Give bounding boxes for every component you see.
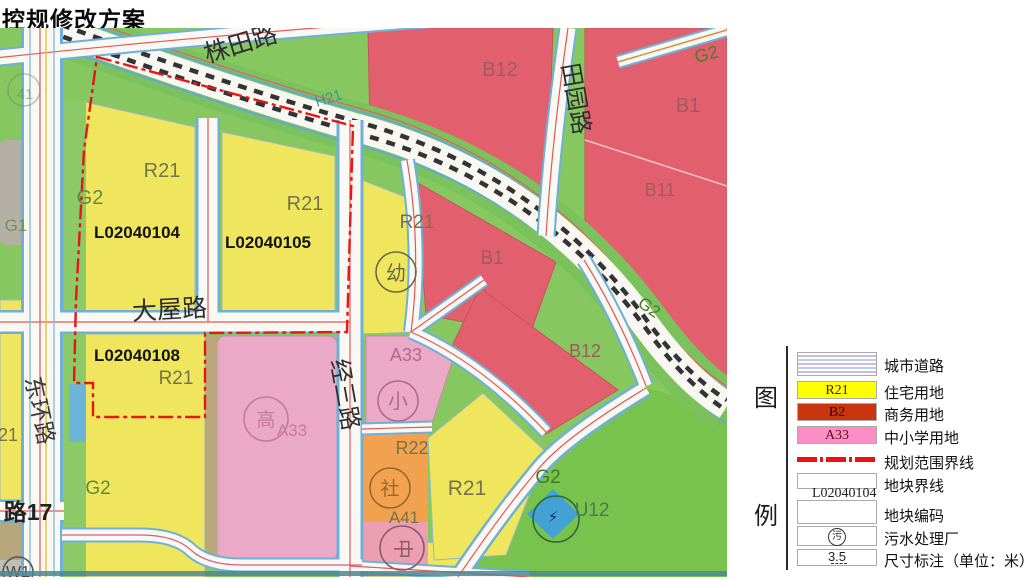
label-r21-104: R21 — [144, 160, 181, 182]
planning-map-page: 控规修改方案 — [0, 0, 1024, 580]
legend-label-business: 商务用地 — [884, 404, 944, 425]
legend-label-plot-line: 地块界线 — [884, 475, 944, 496]
zoning-map: 株田路 田园路 H21 B12 B1 B11 G2 G2 G1 41 R21 L… — [0, 0, 727, 580]
legend-divider — [786, 346, 788, 570]
label-code-104: L02040104 — [94, 223, 181, 242]
road-dawu: 大屋路 — [131, 294, 207, 326]
legend-swatch-dimension: 3.5 — [797, 549, 877, 566]
label-g2-strip: G2 — [85, 478, 110, 499]
glyph-primary: 小 — [388, 390, 408, 413]
legend-label-plot-code: 地块编码 — [884, 505, 944, 526]
legend-swatch-a33: A33 — [797, 426, 877, 444]
glyph-kindergarten: 幼 — [386, 262, 406, 285]
legend-label-dimension: 尺寸标注（单位：米） — [884, 550, 1024, 571]
legend-swatch-boundary — [797, 457, 877, 462]
legend-swatch-b2: B2 — [797, 403, 877, 421]
label-r22: R22 — [395, 438, 428, 458]
label-r21-105: R21 — [287, 193, 324, 215]
legend-swatch-city-road — [797, 352, 877, 376]
legend-label-residential: 住宅用地 — [884, 382, 944, 403]
glyph-highschool: 高 — [256, 409, 275, 431]
label-21-partial: 21 — [0, 425, 18, 445]
blue-patch — [69, 384, 86, 442]
legend-label-boundary: 规划范围界线 — [884, 452, 974, 473]
legend-label-city-road: 城市道路 — [884, 355, 944, 376]
glyph-community: 社 — [380, 478, 399, 500]
label-b11: B11 — [645, 180, 676, 200]
label-code-108: L02040108 — [94, 346, 180, 365]
label-a33-small: A33 — [390, 345, 422, 365]
glyph-bolt: ⚡ — [548, 509, 559, 526]
legend: 图 例 城市道路 R21 住宅用地 B2 商务用地 A33 中小学用地 规划范围… — [740, 340, 1024, 580]
legend-title-bottom: 例 — [754, 496, 778, 531]
sewage-plant-icon: 污 — [828, 528, 846, 546]
bottom-road-edge — [0, 571, 727, 576]
tan-strip — [205, 336, 217, 562]
dimension-value: 3.5 — [828, 549, 846, 564]
label-u12: U12 — [575, 500, 610, 521]
label-g1: G1 — [5, 216, 28, 235]
label-b12-mid: B12 — [569, 341, 601, 361]
legend-label-sewage: 污水处理厂 — [884, 528, 959, 549]
legend-swatch-plot-code — [797, 500, 877, 524]
label-b12-top: B12 — [482, 59, 518, 81]
legend-swatch-r21: R21 — [797, 381, 877, 399]
road-lu17: 路17 — [4, 499, 53, 525]
dimension-tick — [831, 563, 847, 564]
legend-title-top: 图 — [754, 378, 778, 413]
label-r21-108: R21 — [159, 368, 194, 389]
glyph-mid: 中 — [391, 539, 414, 559]
label-r21-pentagon: R21 — [448, 477, 487, 500]
label-b1-mid: B1 — [480, 248, 503, 269]
label-g2-left: G2 — [77, 187, 104, 209]
label-41: 41 — [17, 86, 34, 103]
label-a41: A41 — [389, 508, 419, 527]
label-code-105: L02040105 — [225, 233, 311, 252]
legend-label-school: 中小学用地 — [884, 427, 959, 448]
label-r21-kinder: R21 — [400, 212, 435, 233]
label-g2-park: G2 — [535, 467, 560, 488]
label-a33-high: A33 — [277, 421, 307, 440]
label-b1-right: B1 — [676, 95, 700, 117]
legend-swatch-sewage: 污 — [797, 526, 877, 546]
